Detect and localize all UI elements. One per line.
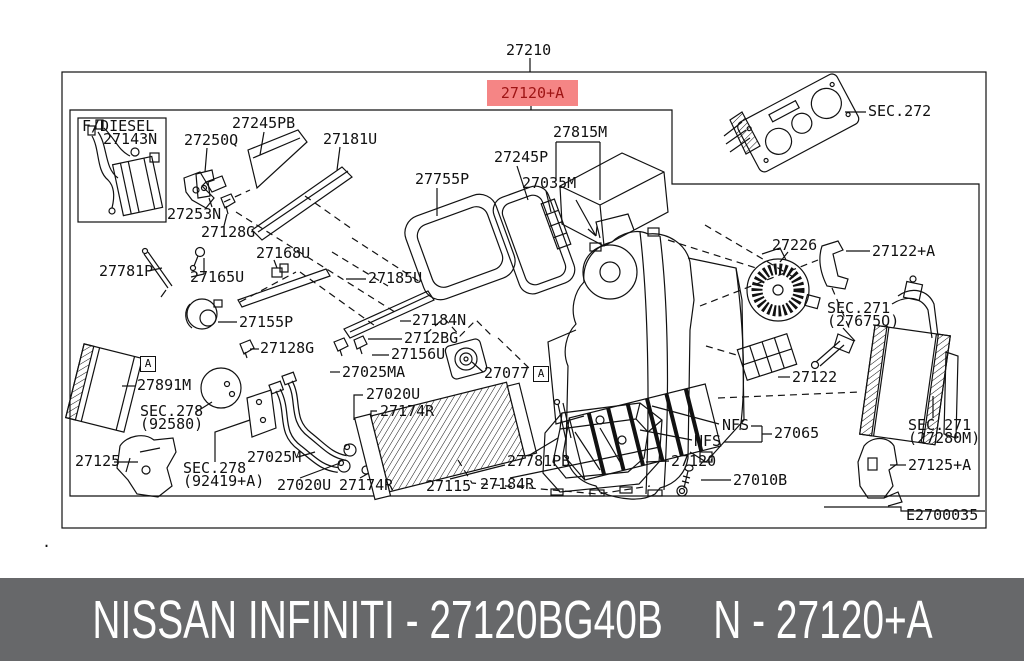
part-label-sec272: SEC.272 (868, 105, 931, 118)
part-label-27891m: 27891M (137, 379, 191, 392)
part-label-27125: 27125 (75, 455, 120, 468)
part-label-27156u: 27156U (391, 348, 445, 361)
part-label-sec278-92580: SEC.278 (92580) (140, 405, 203, 431)
part-label-27010b: 27010B (733, 474, 787, 487)
part-label-27253n: 27253N (167, 208, 221, 221)
part-label-27077: 27077 (484, 367, 529, 380)
part-label-27174r: 27174R (380, 405, 434, 418)
part-label-27020u-2: 27020U (277, 479, 331, 492)
parts-diagram-page: 27210F/DIESEL27143N27245PB27250Q27181U27… (0, 0, 1024, 661)
assembly-code-label: 27210 (506, 44, 551, 57)
part-label-27020u: 27020U (366, 388, 420, 401)
part-label-27122a: 27122+A (872, 245, 935, 258)
part-label-27065: 27065 (774, 427, 819, 440)
highlighted-part-label: 27120+A (487, 80, 578, 106)
part-label-27128g: 27128G (201, 226, 255, 239)
ref-marker-a: A (533, 366, 549, 382)
part-label-27781pb: 27781PB (507, 455, 570, 468)
part-label-27035m: 27035M (522, 177, 576, 190)
part-label-27168u: 27168U (256, 247, 310, 260)
part-label-27122: 27122 (792, 371, 837, 384)
nfs-label-2: NFS (694, 435, 721, 448)
part-label-27781p: 27781P (99, 265, 153, 278)
part-label-27755p: 27755P (415, 173, 469, 186)
diagram-code: E2700035 (906, 509, 978, 522)
banner-part-number: NISSAN INFINITI - 27120BG40B (92, 589, 662, 651)
ref-marker-a: A (140, 356, 156, 372)
stray-dot: . (42, 536, 51, 549)
part-label-27155p: 27155P (239, 316, 293, 329)
part-label-27025ma: 27025MA (342, 366, 405, 379)
nfs-label: NFS (722, 419, 749, 432)
part-label-27245p: 27245P (494, 151, 548, 164)
part-label-27184r: 27184R (480, 478, 534, 491)
part-label-27245pb: 27245PB (232, 117, 295, 130)
part-label-27815m: 27815M (553, 126, 607, 139)
part-label-27128g-2: 27128G (260, 342, 314, 355)
part-label-27185u: 27185U (368, 272, 422, 285)
part-label-sec271-27280m: SEC.271 (27280M) (908, 419, 980, 445)
part-label-27250q: 27250Q (184, 134, 238, 147)
part-label-27174r-2: 27174R (339, 479, 393, 492)
part-label-27115: 27115 (426, 480, 471, 493)
banner-reference-code: N - 27120+A (713, 589, 932, 651)
footer-banner: NISSAN INFINITI - 27120BG40B N - 27120+A (0, 578, 1024, 661)
part-label-27143n: 27143N (103, 133, 157, 146)
part-label-27120: 27120 (671, 455, 716, 468)
part-label-27025m: 27025M (247, 451, 301, 464)
part-label-27125a: 27125+A (908, 459, 971, 472)
part-label-27181u: 27181U (323, 133, 377, 146)
part-label-27184n: 27184N (412, 314, 466, 327)
part-label-2712bg: 2712BG (404, 332, 458, 345)
part-label-27226: 27226 (772, 239, 817, 252)
part-label-27165u: 27165U (190, 271, 244, 284)
part-label-sec271-27675q: SEC.271 (27675Q) (827, 302, 899, 328)
